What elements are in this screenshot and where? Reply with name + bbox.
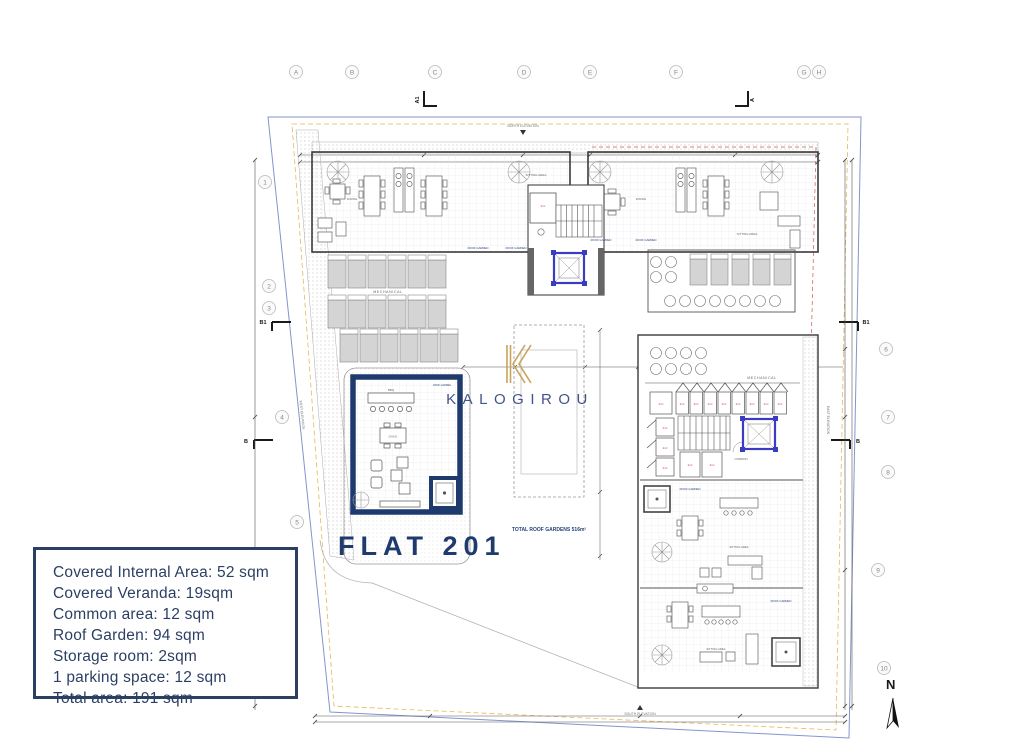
north-symbol: N (886, 677, 895, 692)
dining-label: DINING (389, 436, 398, 439)
page: A B C D E F G H 1 2 3 4 5 6 7 8 9 10 (0, 0, 1024, 749)
tree-icon (652, 645, 672, 665)
grid-row-6: 6 (884, 346, 888, 353)
section-mark-b1-left-label: B1 (259, 320, 266, 326)
roof-garden-label: ROOF GARDEN (771, 599, 792, 603)
sitting-area-label: SITTING AREA (526, 173, 547, 177)
roof-garden-north-east: DINING SITTING AREA (588, 152, 818, 252)
grid-col-g: G (801, 69, 806, 76)
sofa (728, 556, 762, 565)
north-arrow: N (886, 677, 899, 728)
storage-label: 2m² (680, 402, 685, 406)
grid-row-10: 10 (880, 665, 888, 672)
grid-row-1: 1 (263, 179, 267, 186)
sitting-area-label: SITTING AREA (706, 647, 725, 651)
logo: KALOGIROU (440, 344, 600, 408)
roof-garden-label: ROOF GARDEN (680, 487, 701, 491)
elevator (551, 250, 587, 286)
summary-box: Covered Internal Area: 52 sqm Covered Ve… (33, 547, 298, 699)
grid-row-3: 3 (267, 305, 271, 312)
bbq-counter (368, 393, 414, 403)
jacuzzi (772, 638, 800, 666)
storage-label: 2m² (736, 402, 741, 406)
dining-table (364, 176, 380, 216)
north-elevation-label: NORTH ELEVATION (507, 124, 539, 128)
grid-col-a: A (294, 69, 299, 76)
storage-label: 2m² (764, 402, 769, 406)
logo-k-monogram-icon (505, 344, 535, 384)
summary-line: Covered Internal Area: 52 sqm (53, 562, 295, 583)
summary-line: Roof Garden: 94 sqm (53, 625, 295, 646)
sofa (778, 216, 800, 226)
tree-icon (353, 492, 369, 508)
roof-garden-label: ROOF GARDEN (506, 246, 527, 250)
elevator (740, 416, 778, 452)
section-mark-a1-label: A1 (415, 96, 421, 103)
roof-garden-label: ROOF GARDEN (636, 238, 657, 242)
section-mark-b-right-label: B (856, 439, 860, 445)
bbq-label: BBQ (388, 388, 395, 392)
roof-garden-label: ROOF GARDEN (468, 246, 489, 250)
storage-label: 2m² (694, 402, 699, 406)
storage-label: 2m² (541, 204, 546, 208)
jacuzzi (644, 486, 670, 512)
dining-label: DINING (347, 197, 358, 201)
sofa (397, 457, 408, 468)
tree-icon (589, 161, 611, 183)
bar-counter (702, 606, 740, 617)
storage-label: 2m² (688, 463, 693, 467)
tree-icon (508, 161, 530, 183)
summary-line: Storage room: 2sqm (53, 646, 295, 667)
grid-row-5: 5 (295, 519, 299, 526)
grid-row-9: 9 (876, 567, 880, 574)
south-elevation-label: SOUTH ELEVATION (624, 712, 656, 716)
storage-label: 2m² (708, 402, 713, 406)
staircase (678, 416, 730, 450)
sitting-area-label: SITTING AREA (729, 545, 748, 549)
grid-col-d: D (522, 69, 527, 76)
storage-label: 2m² (778, 402, 783, 406)
grid-col-h: H (817, 69, 822, 76)
mechanical-panels-west: MECHANICAL (328, 255, 458, 362)
mechanical-label: MECHANICAL (747, 376, 777, 380)
storage-label: 2m² (750, 402, 755, 406)
storage-label: 2m² (659, 402, 664, 406)
south-east-block: MECHANICAL 2m² 2m² 2m² 2m² 2m² 2m² 2m² 2… (638, 335, 818, 688)
jacuzzi (431, 478, 458, 508)
armchair (371, 460, 382, 471)
staircase (556, 205, 602, 237)
storage-label: 2m² (663, 466, 668, 470)
sofa (318, 218, 332, 228)
summary-line: 1 parking space: 12 sqm (53, 667, 295, 688)
roof-garden-203: ROOF GARDEN SITTING AREA (640, 584, 803, 672)
dining-table (672, 602, 688, 628)
grid-col-e: E (588, 69, 593, 76)
storage-label: 2m² (663, 426, 668, 430)
east-elevation-label: EAST ELEVATION (826, 406, 830, 435)
logo-text: KALOGIROU (440, 391, 600, 408)
total-roof-gardens-label: TOTAL ROOF GARDENS 516m² (512, 527, 587, 533)
roof-garden-label: ROOF GARDEN (591, 238, 612, 242)
grid-col-b: B (350, 69, 354, 76)
dining-table (682, 516, 698, 540)
grid-col-f: F (674, 69, 678, 76)
flat-title: FLAT 201 (338, 531, 506, 562)
dining-table (426, 176, 442, 216)
tree-icon (761, 161, 783, 183)
mechanical-panels-east (648, 250, 795, 312)
mechanical-label: MECHANICAL (373, 290, 403, 294)
grid-row-2: 2 (267, 283, 271, 290)
sofa (746, 634, 758, 664)
summary-line: Covered Veranda: 19sqm (53, 583, 295, 604)
tree-icon (652, 542, 672, 562)
section-mark-b-left-label: B (244, 439, 248, 445)
sitting-area-label: SITTING AREA (737, 232, 758, 236)
summary-line: Common area: 12 sqm (53, 604, 295, 625)
section-mark-b1-right-label: B1 (862, 320, 869, 326)
summary-line: Total area: 191 sqm (53, 688, 295, 709)
bar-counter (720, 498, 758, 508)
storage-label: 2m² (722, 402, 727, 406)
grid-columns: A B C D E F G H (290, 66, 826, 79)
grid-row-7: 7 (886, 414, 890, 421)
dining-table (708, 176, 724, 216)
common-label: COMMON (734, 457, 747, 461)
grid-row-4: 4 (280, 414, 284, 421)
section-mark-a-label: A (750, 98, 756, 102)
storage-label: 2m² (710, 463, 715, 467)
armchair (371, 477, 382, 488)
dining-label: DINING (636, 197, 647, 201)
grid-col-c: C (433, 69, 438, 76)
storage-label: 2m² (663, 446, 668, 450)
grid-row-8: 8 (886, 469, 890, 476)
roof-garden-202: ROOF GARDEN SITTING AREA (640, 480, 803, 586)
